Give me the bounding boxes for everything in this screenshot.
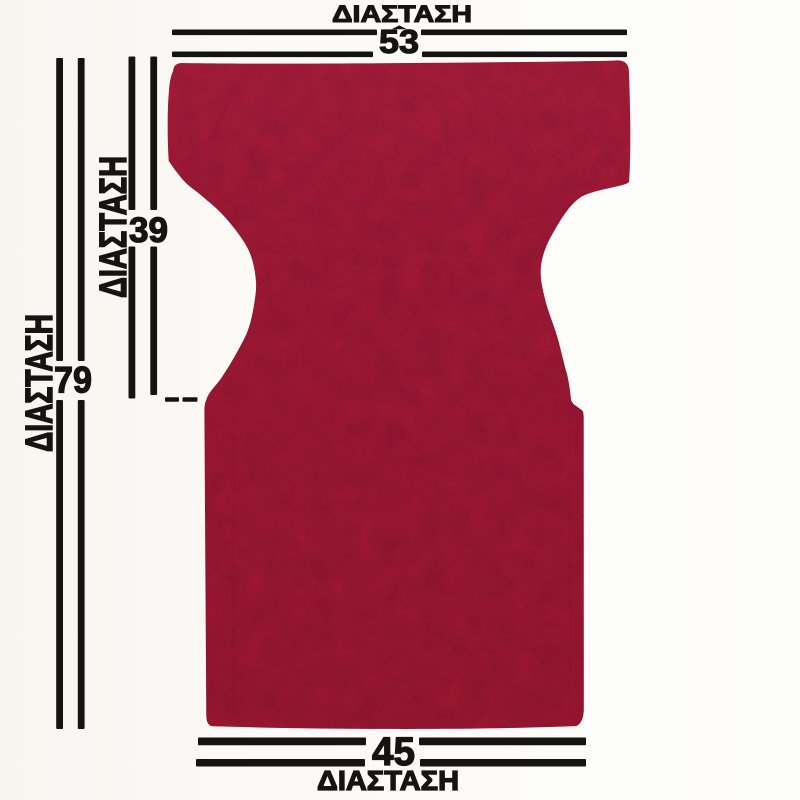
svg-text:79: 79 <box>54 359 92 401</box>
svg-text:53: 53 <box>379 24 419 61</box>
svg-text:39: 39 <box>129 211 168 250</box>
svg-text:ΔΙΑΣΤΑΣΗ: ΔΙΑΣΤΑΣΗ <box>317 765 459 796</box>
